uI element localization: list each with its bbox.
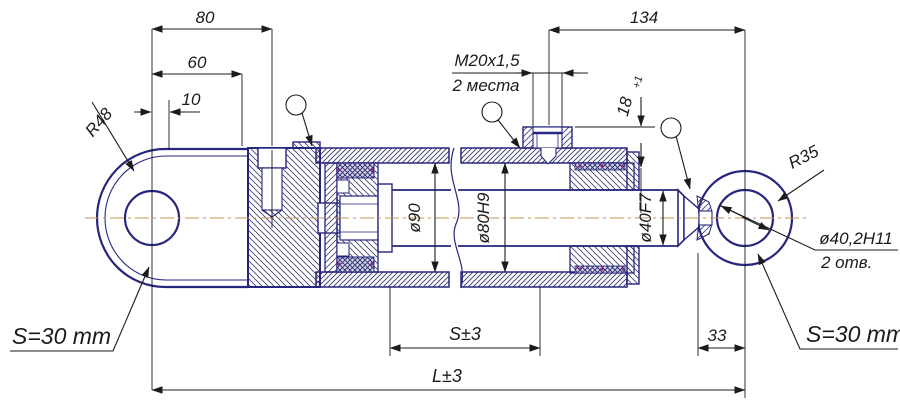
- seal-dot: [621, 164, 624, 167]
- cap-body: [248, 148, 320, 287]
- tube-wall-bottom-right: [461, 272, 627, 287]
- balloon-callout-3: [661, 118, 681, 138]
- gland-seals-top: [575, 163, 625, 170]
- rod-40f7-label: ø40F7: [636, 193, 655, 243]
- seal-dot: [578, 164, 581, 167]
- seal-dot: [600, 267, 603, 270]
- thread-spec-label: M20x1,5: [454, 51, 520, 70]
- radius-r35-label: R35: [785, 141, 822, 172]
- seal-dot: [600, 164, 603, 167]
- eye-hole-label: ø40,2H11: [819, 229, 892, 248]
- seal-dot: [578, 267, 581, 270]
- drawing-canvas: 80 60 10 134 M20x1,5 2 места 18 +1 ø90 ø…: [0, 0, 900, 401]
- eye-hole-places-label: 2 отв.: [820, 253, 872, 272]
- balloon-leader-3: [676, 136, 690, 189]
- dim-80-label: 80: [196, 8, 215, 27]
- dim-10-label: 10: [182, 90, 201, 109]
- dim-33-label: 33: [708, 326, 727, 345]
- gland-flange-bottom: [627, 246, 639, 284]
- balloon-callout-1: [286, 95, 306, 115]
- tube-wall-bottom-left: [316, 272, 449, 287]
- seal-dot: [337, 168, 340, 171]
- leader-r35: [778, 170, 824, 201]
- balloon-callout-2: [482, 102, 502, 122]
- gland-flange-top: [627, 152, 639, 190]
- port-depth-label: 18: [613, 94, 636, 118]
- balloon-leader-1: [302, 113, 312, 146]
- seal-dot: [621, 267, 624, 270]
- dim-60-label: 60: [188, 53, 207, 72]
- radius-r48-label: R48: [81, 104, 116, 140]
- length-dim-label: L±3: [432, 366, 462, 386]
- gland-seals-bottom: [575, 266, 625, 273]
- wrench-right-label: S=30 mm: [806, 321, 900, 347]
- piston-seal-top: [337, 163, 374, 178]
- part-geometry: [97, 127, 792, 288]
- wrench-left-label: S=30 mm: [12, 323, 111, 349]
- piston-seal-bottom: [337, 257, 374, 272]
- piston-bolt-top: [337, 180, 349, 193]
- port-depth-tol-label: +1: [631, 75, 646, 90]
- tube-wall-top-left: [316, 148, 449, 163]
- stroke-dim-label: S±3: [449, 324, 481, 344]
- hydraulic-cylinder-drawing: 80 60 10 134 M20x1,5 2 места 18 +1 ø90 ø…: [0, 0, 900, 401]
- bore-90-label: ø90: [405, 203, 424, 233]
- piston-bolt-bottom: [337, 243, 349, 256]
- seal-dot: [370, 262, 373, 265]
- balloon-leader-2: [498, 120, 520, 148]
- dim-134-label: 134: [630, 8, 658, 27]
- seal-dot: [370, 168, 373, 171]
- bore-80h9-label: ø80H9: [474, 192, 493, 244]
- thread-places-label: 2 места: [451, 76, 519, 95]
- seal-dot: [337, 262, 340, 265]
